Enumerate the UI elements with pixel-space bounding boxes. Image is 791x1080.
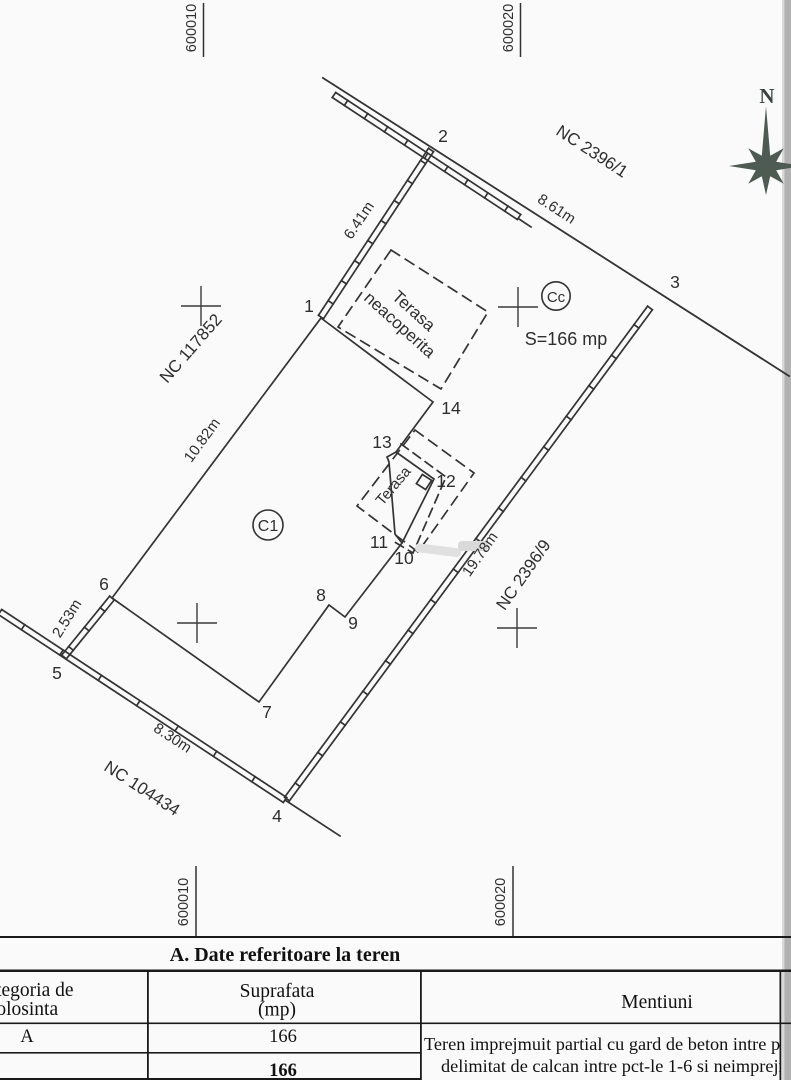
svg-text:10: 10 — [394, 548, 414, 568]
svg-text:600020: 600020 — [493, 878, 509, 926]
svg-text:13: 13 — [372, 432, 391, 452]
svg-text:(mp): (mp) — [258, 1000, 296, 1021]
svg-text:6: 6 — [99, 574, 109, 594]
svg-text:Cc: Cc — [547, 289, 566, 306]
svg-text:folosinta: folosinta — [0, 999, 58, 1020]
svg-text:7: 7 — [262, 702, 272, 722]
svg-text:delimitat de calcan intre pct-: delimitat de calcan intre pct-le 1-6 si … — [441, 1056, 791, 1076]
svg-text:5: 5 — [52, 663, 62, 683]
svg-text:600020: 600020 — [501, 4, 517, 52]
svg-text:N: N — [759, 84, 774, 108]
svg-text:600010: 600010 — [184, 4, 200, 52]
svg-text:166: 166 — [269, 1027, 297, 1047]
svg-text:12: 12 — [436, 471, 455, 491]
svg-text:9: 9 — [348, 613, 358, 633]
svg-text:8: 8 — [316, 585, 326, 605]
svg-text:Mentiuni: Mentiuni — [621, 992, 693, 1013]
svg-text:2: 2 — [438, 126, 448, 146]
svg-text:S=166 mp: S=166 mp — [525, 329, 608, 349]
svg-text:Teren imprejmuit partial cu ga: Teren imprejmuit partial cu gard de beto… — [424, 1034, 791, 1054]
svg-text:C1: C1 — [258, 518, 279, 535]
svg-text:166: 166 — [269, 1061, 297, 1080]
svg-text:11: 11 — [370, 532, 388, 552]
svg-text:A: A — [20, 1027, 34, 1047]
svg-text:3: 3 — [670, 272, 680, 292]
svg-text:600010: 600010 — [176, 878, 192, 926]
svg-text:4: 4 — [272, 806, 282, 826]
svg-text:14: 14 — [441, 398, 461, 418]
svg-text:A. Date referitoare la teren: A. Date referitoare la teren — [170, 944, 400, 966]
svg-text:1: 1 — [304, 296, 314, 316]
svg-text:Categoria de: Categoria de — [0, 980, 74, 1001]
